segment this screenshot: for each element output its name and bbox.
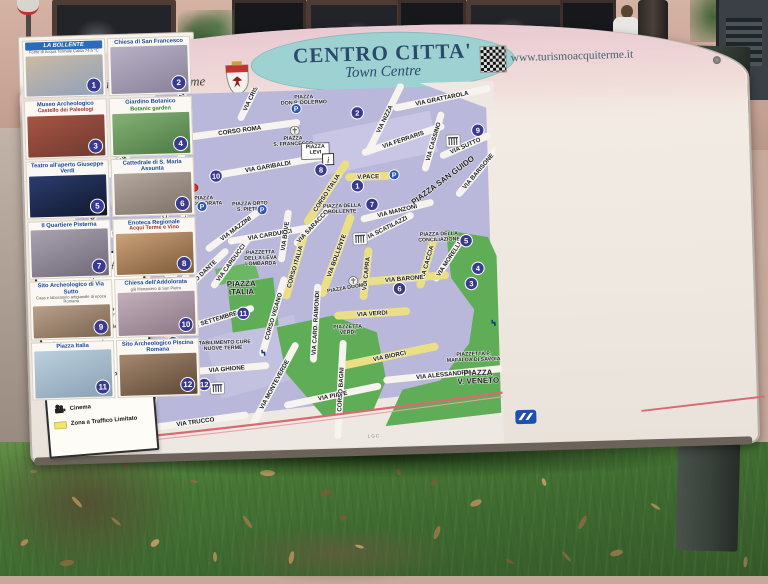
map-marker-5: 5 — [464, 236, 468, 245]
map-marker-10: 10 — [212, 172, 221, 181]
poi-photo: 6 — [114, 172, 192, 215]
poi-photo: 12 — [119, 353, 197, 396]
poi-number-badge: 11 — [95, 379, 110, 394]
poi-card-11: Piazza Italia11 — [31, 340, 116, 401]
poi-number-badge: 3 — [88, 138, 103, 153]
poi-number-badge: 1 — [86, 78, 101, 93]
legend-item-label: Zona a Traffico Limitato — [71, 416, 138, 428]
poi-photo: 2 — [110, 45, 188, 94]
poi-card-3: Museo ArcheologicoCastello dei Paleologi… — [24, 99, 109, 160]
page-title: CENTRO CITTA' — [293, 41, 472, 67]
place-label: PIAZZAITALIA — [227, 279, 257, 297]
place-label: PIAZZA DELLABOLLENTE — [323, 203, 362, 216]
ztl-swatch — [54, 418, 68, 432]
poi-number-badge: 10 — [178, 316, 193, 331]
map-marker-1: 1 — [355, 181, 359, 190]
poi-card-7: Il Quartiere Pisterna7 — [27, 219, 112, 280]
ruins-icon — [210, 382, 224, 394]
ruins-icon — [355, 235, 365, 237]
poi-photo: 10 — [118, 291, 196, 336]
poi-card-8: Enoteca RegionaleAcqui Terme e Vino8 — [112, 217, 197, 278]
poi-number-badge: 9 — [93, 319, 108, 334]
poi-card-1: LA BOLLENTEFonte di Acqua Termale Calda … — [22, 38, 107, 99]
place-label: PIAZZETTADELLA LEVALOMBARDA — [244, 249, 277, 267]
page-subtitle: Town Centre — [345, 63, 421, 82]
qr-code — [480, 46, 506, 72]
map-marker-11: 11 — [239, 309, 247, 318]
poi-number-badge: 12 — [180, 377, 195, 392]
poi-card-4: Giardino BotanicoBotanic garden4 — [109, 96, 194, 157]
parking-icon: P — [200, 204, 205, 211]
legend-item-text: Zona a Traffico Limitato — [71, 416, 138, 428]
poi-photo: 1 — [25, 54, 103, 97]
map-marker-12: 12 — [200, 380, 209, 389]
map-marker-9: 9 — [476, 126, 480, 135]
ruins-icon — [353, 233, 367, 245]
poi-number-badge: 2 — [171, 75, 186, 90]
poi-number-badge: 8 — [176, 256, 191, 271]
poi-name: Sito Archeologico Piscina Romana — [119, 339, 196, 354]
poi-card-9: Sito Archeologico di Via SuttoCasa e lab… — [29, 280, 114, 341]
legend-item-text: Cinema — [69, 404, 91, 412]
dirt-patch — [225, 524, 455, 584]
poi-number-badge: 5 — [90, 198, 105, 213]
poi-card-10: Chiesa dell'Addoloratagià Monastero di S… — [114, 277, 199, 338]
poi-photo: 3 — [27, 114, 105, 157]
ruins-icon — [212, 384, 222, 386]
sign-board: CENTRO CITTA' Town Centre Città di Acqui… — [18, 15, 756, 460]
ruins-icon — [448, 137, 458, 139]
poi-name: Cattedrale di S. Maria Assunta — [114, 158, 191, 173]
map-marker-6: 6 — [397, 284, 401, 293]
railway-fs-logo-icon — [515, 410, 536, 425]
parking-icon: P — [392, 172, 397, 179]
poi-card-2: Chiesa di San Francesco2 — [107, 36, 192, 97]
poi-number-badge: 7 — [91, 259, 106, 274]
poi-name: Teatro all'aperto Giuseppe Verdi — [29, 161, 106, 176]
poi-card-5: Teatro all'aperto Giuseppe Verdi5 — [26, 159, 111, 220]
poi-photo: 8 — [116, 232, 194, 275]
map-marker-2: 2 — [355, 108, 359, 117]
map-marker-7: 7 — [370, 200, 374, 209]
poi-card-6: Cattedrale di S. Maria Assunta6 — [111, 156, 196, 217]
poi-photo: 5 — [29, 174, 107, 217]
cinema-icon — [52, 403, 66, 417]
map-credit: LGC — [368, 433, 380, 438]
parking-icon: P — [260, 207, 265, 214]
poi-number-badge: 6 — [175, 196, 190, 211]
street-label: V.PACE — [357, 173, 379, 181]
ruins-icon — [446, 135, 460, 147]
poi-photo: 11 — [34, 349, 112, 398]
poi-card-12: Sito Archeologico Piscina Romana12 — [116, 337, 201, 398]
poi-photo: 7 — [31, 229, 109, 278]
poi-photo: 4 — [112, 112, 190, 155]
poi-photo: 9 — [33, 304, 111, 338]
map-marker-3: 3 — [469, 279, 473, 288]
legend-item-label: Cinema — [69, 404, 91, 412]
map-marker-8: 8 — [319, 166, 323, 175]
poi-number-badge: 4 — [173, 136, 188, 151]
place-label: PIAZZA DELLACONCILIAZIONE — [418, 231, 461, 244]
parking-icon: P — [294, 106, 299, 113]
